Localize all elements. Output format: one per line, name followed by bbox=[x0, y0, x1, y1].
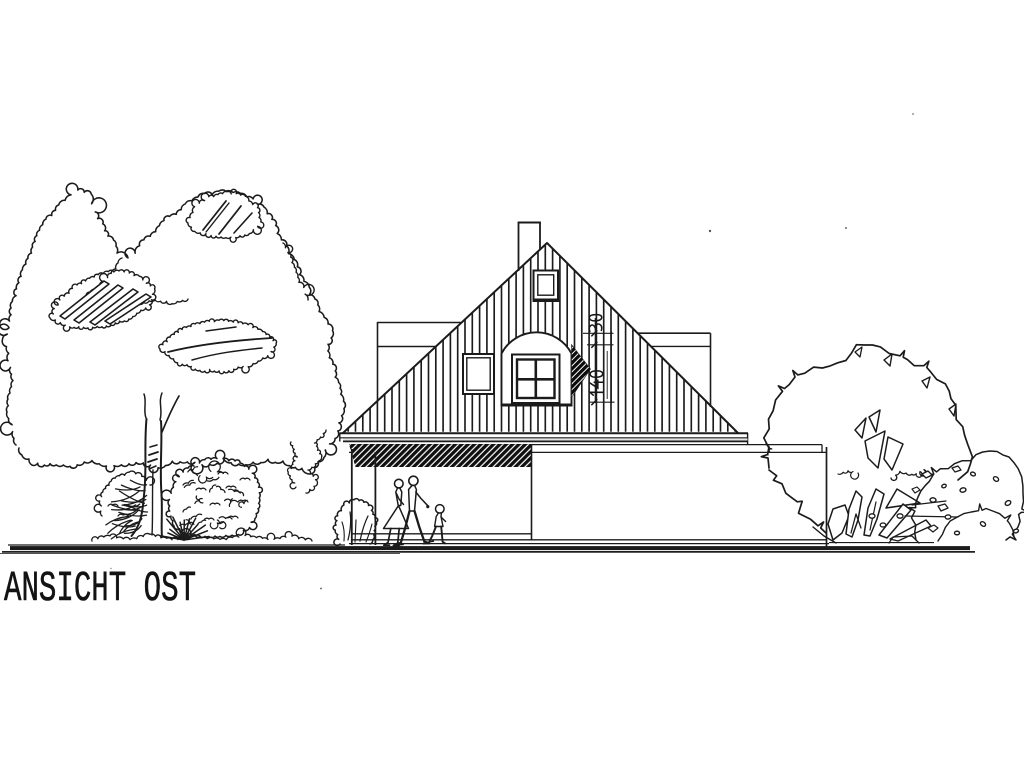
svg-text:ANSICHT OST: ANSICHT OST bbox=[4, 565, 196, 613]
